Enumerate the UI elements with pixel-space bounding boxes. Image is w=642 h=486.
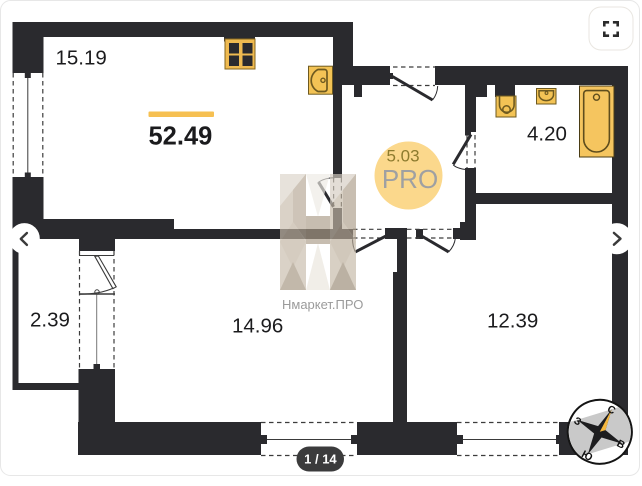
svg-text:PRO: PRO: [382, 164, 438, 194]
svg-text:1 / 14: 1 / 14: [304, 452, 337, 467]
svg-text:15.19: 15.19: [56, 47, 107, 70]
svg-text:5.03: 5.03: [386, 147, 419, 166]
svg-text:Нмаркет.ПРО: Нмаркет.ПРО: [282, 297, 363, 312]
svg-text:52.49: 52.49: [149, 123, 213, 151]
svg-text:4.20: 4.20: [527, 123, 567, 146]
svg-text:2.39: 2.39: [30, 309, 70, 332]
svg-text:12.39: 12.39: [487, 310, 538, 333]
svg-text:14.96: 14.96: [232, 315, 283, 338]
